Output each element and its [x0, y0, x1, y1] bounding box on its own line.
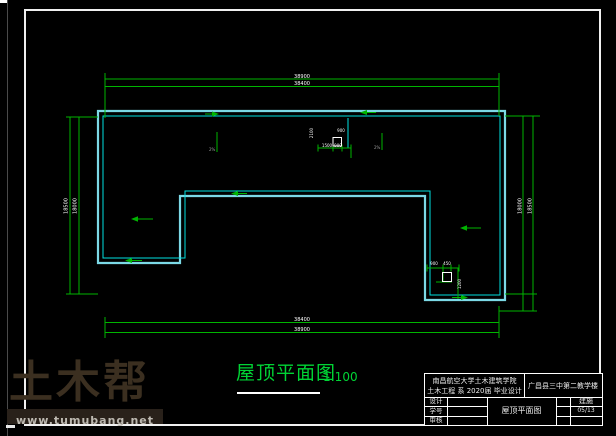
plan-title-underline: [237, 392, 320, 394]
tb-row-design: 设计: [425, 397, 447, 406]
dim-left-inner: 18000: [74, 198, 79, 214]
watermark-logo: 土木帮: [9, 358, 150, 408]
watermark-bar: www.tumubang.net: [7, 409, 163, 424]
parapet-outline-outer: [98, 111, 505, 300]
plan-title: 屋顶平面图: [236, 363, 336, 383]
title-block: 南昌航空大学土木建筑学院 土木工程 系 2020届 毕业设计 广昌县三中第二教学…: [424, 373, 603, 426]
plan-scale: 1:100: [323, 371, 358, 384]
arrowhead: [131, 216, 138, 221]
watermark-site: www.tumubang.net: [16, 414, 154, 427]
stair-dim-side: 2100: [310, 128, 314, 138]
slope-label-2: 2%: [374, 146, 380, 150]
drain-dim2: 450: [443, 262, 451, 266]
stair-dim-left: 1500: [322, 144, 332, 148]
cad-roof-plan-screenshot: 38900 38400 38400 38900 18500 18000 1800…: [0, 0, 616, 436]
stair-dim-right: 900: [334, 144, 342, 148]
dim-left-outer: 18500: [65, 198, 70, 214]
slope-label-1: 2%: [209, 148, 215, 152]
slope-arrows: [130, 113, 481, 298]
tb-project-name: 广昌县三中第二教学楼: [524, 382, 602, 391]
tb-drawing-title: 屋顶平面图: [487, 397, 556, 425]
dimension-lines: [66, 73, 540, 338]
drain-rect: [443, 273, 452, 282]
tb-school-line2: 土木工程 系 2020届 毕业设计: [425, 386, 524, 396]
tb-line: [556, 397, 557, 425]
dim-bottom-second: 38900: [294, 328, 310, 333]
tb-row-review: 审核: [425, 416, 447, 425]
tb-category: 建施: [570, 397, 602, 406]
dim-bottom-first: 38400: [294, 318, 310, 323]
tb-row-student: 学号: [425, 406, 447, 416]
tb-line: [447, 397, 448, 425]
dim-top-inner: 38400: [294, 82, 310, 87]
tb-school-line1: 南昌航空大学土木建筑学院: [425, 376, 524, 386]
tb-line: [556, 416, 602, 417]
arrowhead: [460, 225, 467, 230]
stair-dim-top: 900: [337, 129, 345, 133]
drain-dim-side: 1200: [458, 279, 462, 289]
dim-right-inner: 18000: [519, 198, 524, 214]
drain-dim1: 900: [430, 262, 438, 266]
tb-sheet-no: 05/13: [570, 406, 602, 416]
dim-right-outer: 18500: [529, 198, 534, 214]
dim-top-outer: 38900: [294, 75, 310, 80]
